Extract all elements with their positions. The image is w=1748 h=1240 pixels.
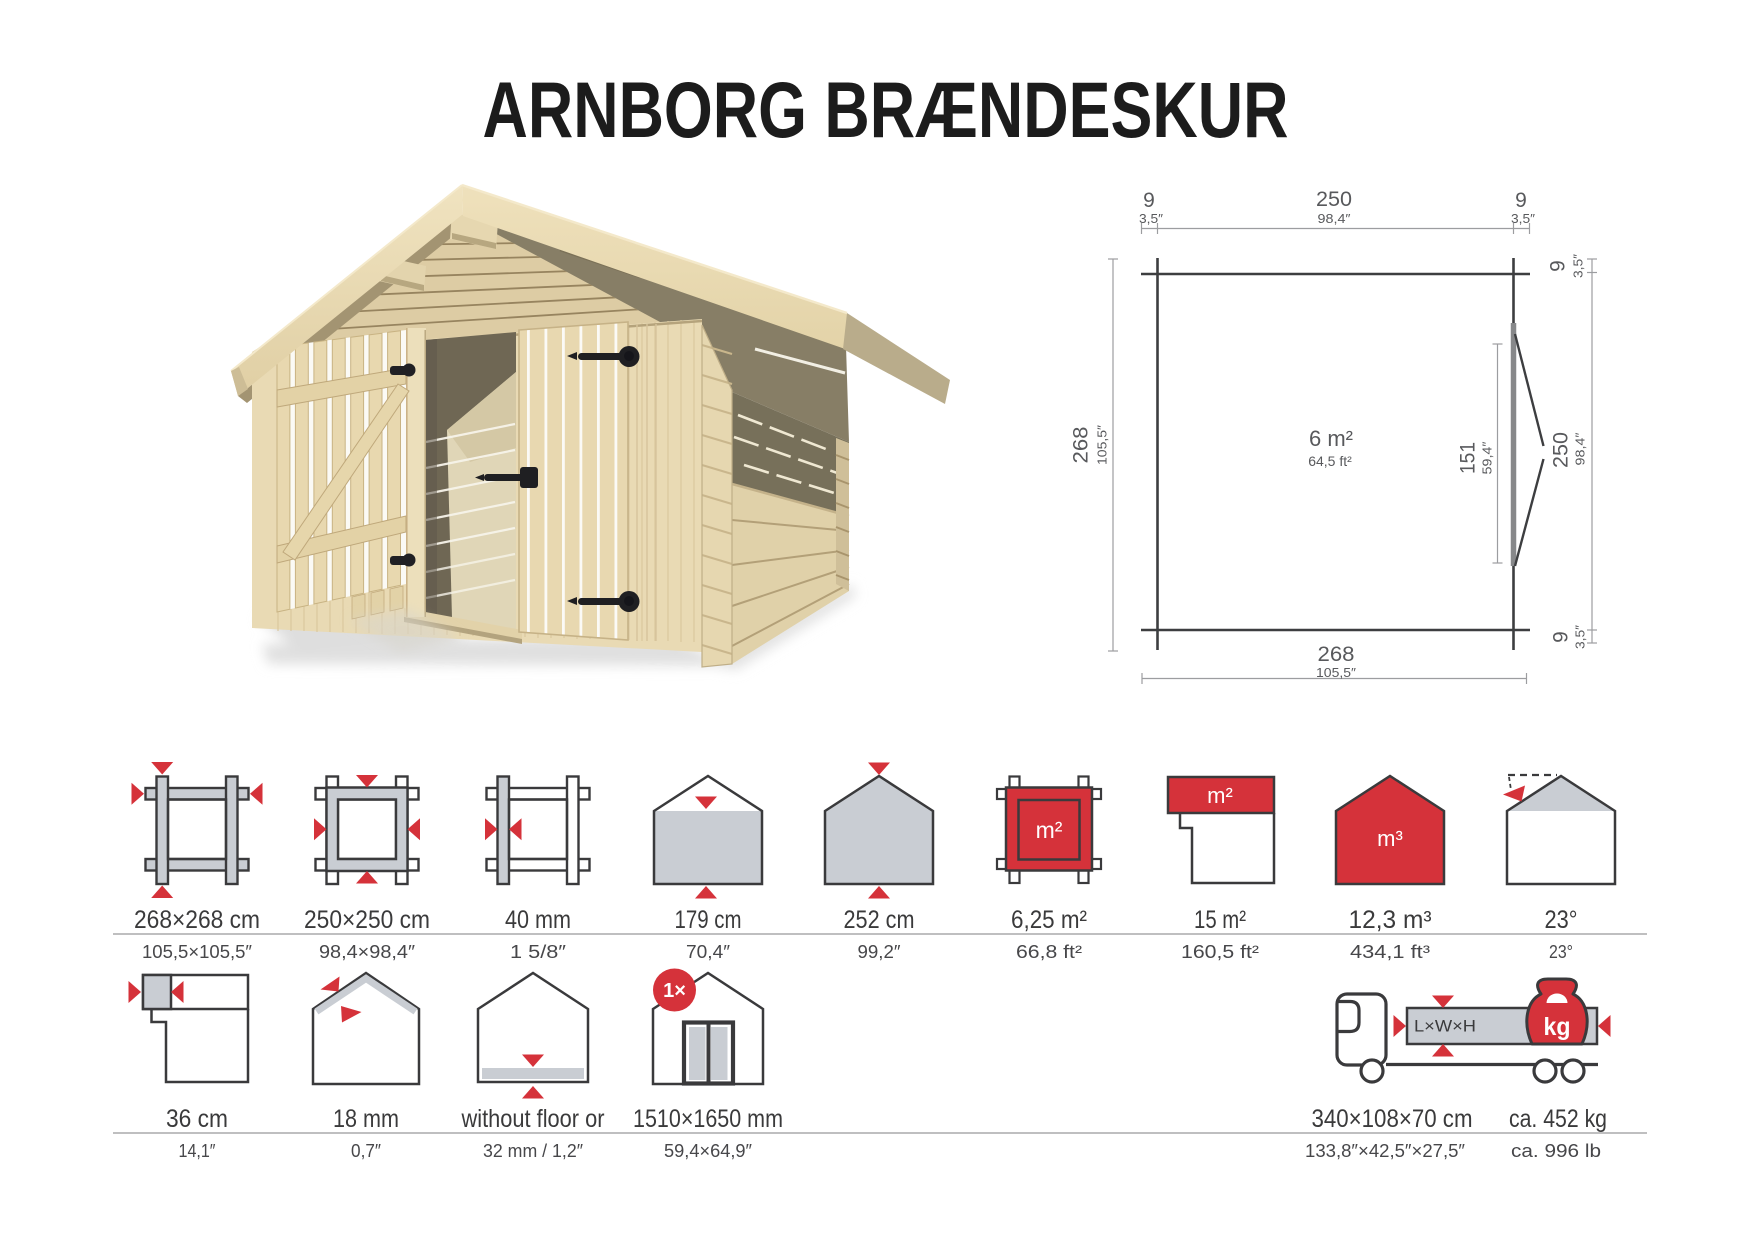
svg-text:12,3 m³: 12,3 m³ (1349, 906, 1432, 934)
svg-text:18 mm: 18 mm (333, 1105, 399, 1133)
svg-text:59,4×64,9″: 59,4×64,9″ (664, 1141, 753, 1161)
svg-text:m²: m² (1207, 783, 1233, 808)
svg-text:m³: m³ (1377, 826, 1403, 851)
svg-text:268×268 cm: 268×268 cm (134, 906, 260, 934)
svg-text:3,5″: 3,5″ (1573, 625, 1588, 649)
svg-text:250: 250 (1316, 188, 1352, 211)
svg-text:32 mm / 1,2″: 32 mm / 1,2″ (483, 1141, 584, 1161)
svg-text:ca. 452 kg: ca. 452 kg (1509, 1105, 1607, 1133)
svg-text:L×W×H: L×W×H (1414, 1017, 1476, 1036)
svg-text:105,5″: 105,5″ (1095, 425, 1110, 465)
svg-text:40 mm: 40 mm (505, 906, 571, 934)
svg-text:9: 9 (1550, 631, 1573, 643)
svg-text:3,5″: 3,5″ (1571, 254, 1586, 278)
svg-text:98,4″: 98,4″ (1573, 432, 1588, 465)
svg-text:160,5 ft²: 160,5 ft² (1181, 942, 1259, 962)
svg-text:59,4″: 59,4″ (1480, 441, 1495, 474)
svg-text:ARNBORG BRÆNDESKUR: ARNBORG BRÆNDESKUR (483, 65, 1289, 154)
svg-text:23°: 23° (1549, 942, 1573, 962)
svg-text:1×: 1× (663, 980, 686, 1002)
svg-text:m²: m² (1036, 817, 1063, 843)
svg-text:9: 9 (1143, 189, 1155, 212)
svg-text:kg: kg (1544, 1013, 1571, 1041)
svg-text:340×108×70 cm: 340×108×70 cm (1312, 1105, 1473, 1133)
svg-text:0,7″: 0,7″ (351, 1141, 382, 1161)
svg-text:66,8 ft²: 66,8 ft² (1016, 942, 1082, 962)
svg-text:70,4″: 70,4″ (686, 942, 731, 962)
svg-text:36 cm: 36 cm (166, 1105, 228, 1133)
svg-text:99,2″: 99,2″ (858, 942, 902, 962)
svg-text:252 cm: 252 cm (844, 906, 915, 934)
svg-text:6,25 m²: 6,25 m² (1011, 906, 1087, 934)
svg-text:250: 250 (1550, 432, 1573, 468)
svg-text:268: 268 (1070, 427, 1093, 464)
svg-text:105,5×105,5″: 105,5×105,5″ (142, 942, 253, 962)
svg-text:23°: 23° (1545, 906, 1578, 934)
svg-text:15 m²: 15 m² (1194, 906, 1246, 934)
svg-text:1510×1650 mm: 1510×1650 mm (633, 1105, 783, 1133)
svg-text:434,1 ft³: 434,1 ft³ (1350, 942, 1430, 962)
svg-text:14,1″: 14,1″ (179, 1141, 217, 1161)
svg-text:250×250 cm: 250×250 cm (304, 906, 430, 934)
svg-text:3,5″: 3,5″ (1139, 211, 1163, 226)
svg-text:98,4×98,4″: 98,4×98,4″ (319, 942, 416, 962)
svg-text:179 cm: 179 cm (675, 906, 742, 934)
svg-text:98,4″: 98,4″ (1318, 211, 1351, 226)
svg-text:6 m²: 6 m² (1309, 426, 1353, 451)
svg-text:151: 151 (1457, 442, 1480, 474)
svg-text:1 5/8″: 1 5/8″ (510, 942, 567, 962)
svg-text:64,5 ft²: 64,5 ft² (1308, 453, 1352, 469)
svg-text:268: 268 (1318, 643, 1355, 666)
svg-text:133,8″×42,5″×27,5″: 133,8″×42,5″×27,5″ (1305, 1141, 1466, 1161)
svg-text:without floor or: without floor or (461, 1105, 605, 1133)
svg-text:9: 9 (1547, 260, 1570, 272)
svg-text:9: 9 (1515, 189, 1527, 212)
svg-text:3,5″: 3,5″ (1511, 211, 1535, 226)
svg-text:105,5″: 105,5″ (1316, 665, 1356, 680)
svg-text:ca. 996 lb: ca. 996 lb (1511, 1141, 1601, 1161)
